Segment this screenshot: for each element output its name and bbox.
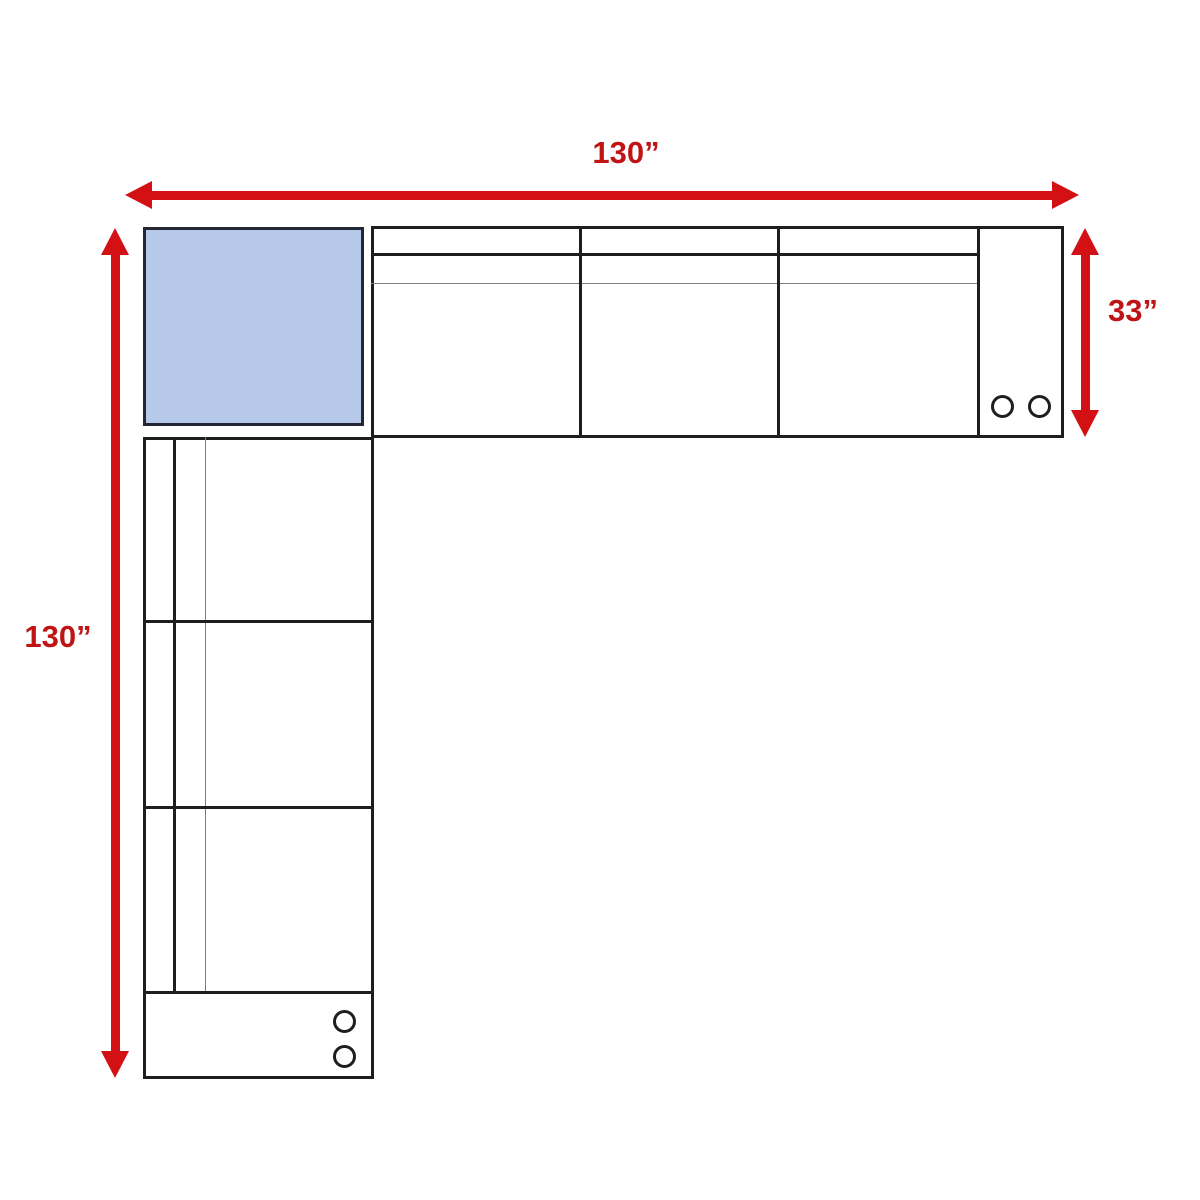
arrow-left-head-icon bbox=[125, 181, 152, 209]
right-depth-label: 33” bbox=[1108, 293, 1158, 329]
vertical-sofa-outline bbox=[143, 437, 374, 1079]
top-width-arrow-shaft bbox=[147, 191, 1057, 200]
vertical-sofa-arm-boundary bbox=[143, 991, 374, 994]
arrow-right-head-icon bbox=[1052, 181, 1079, 209]
horizontal-sofa-seat-divider bbox=[777, 226, 780, 438]
horizontal-sofa-seat-divider bbox=[579, 226, 582, 438]
horizontal-sofa-outline bbox=[371, 226, 1064, 438]
arrow-up-head-icon bbox=[1071, 228, 1099, 255]
cupholder-circle-icon bbox=[333, 1010, 356, 1033]
arrow-up-head-icon bbox=[101, 228, 129, 255]
cupholder-circle-icon bbox=[1028, 395, 1051, 418]
corner-piece bbox=[143, 227, 364, 426]
horizontal-sofa-back-line bbox=[371, 253, 980, 256]
vertical-sofa-seat-divider bbox=[143, 806, 374, 809]
cupholder-circle-icon bbox=[991, 395, 1014, 418]
vertical-sofa-back-thin-line bbox=[205, 437, 206, 993]
left-height-arrow-shaft bbox=[111, 252, 120, 1053]
left-height-label: 130” bbox=[24, 619, 91, 655]
right-depth-arrow-shaft bbox=[1081, 252, 1090, 413]
cupholder-circle-icon bbox=[333, 1045, 356, 1068]
horizontal-sofa-back-thin-line bbox=[371, 283, 980, 284]
arrow-down-head-icon bbox=[101, 1051, 129, 1078]
sectional-diagram: 130” 130” 33” bbox=[0, 0, 1200, 1200]
arrow-down-head-icon bbox=[1071, 410, 1099, 437]
vertical-sofa-seat-divider bbox=[143, 620, 374, 623]
horizontal-sofa-arm-boundary bbox=[977, 226, 980, 438]
top-width-label: 130” bbox=[592, 135, 659, 171]
vertical-sofa-back-line bbox=[173, 437, 176, 993]
